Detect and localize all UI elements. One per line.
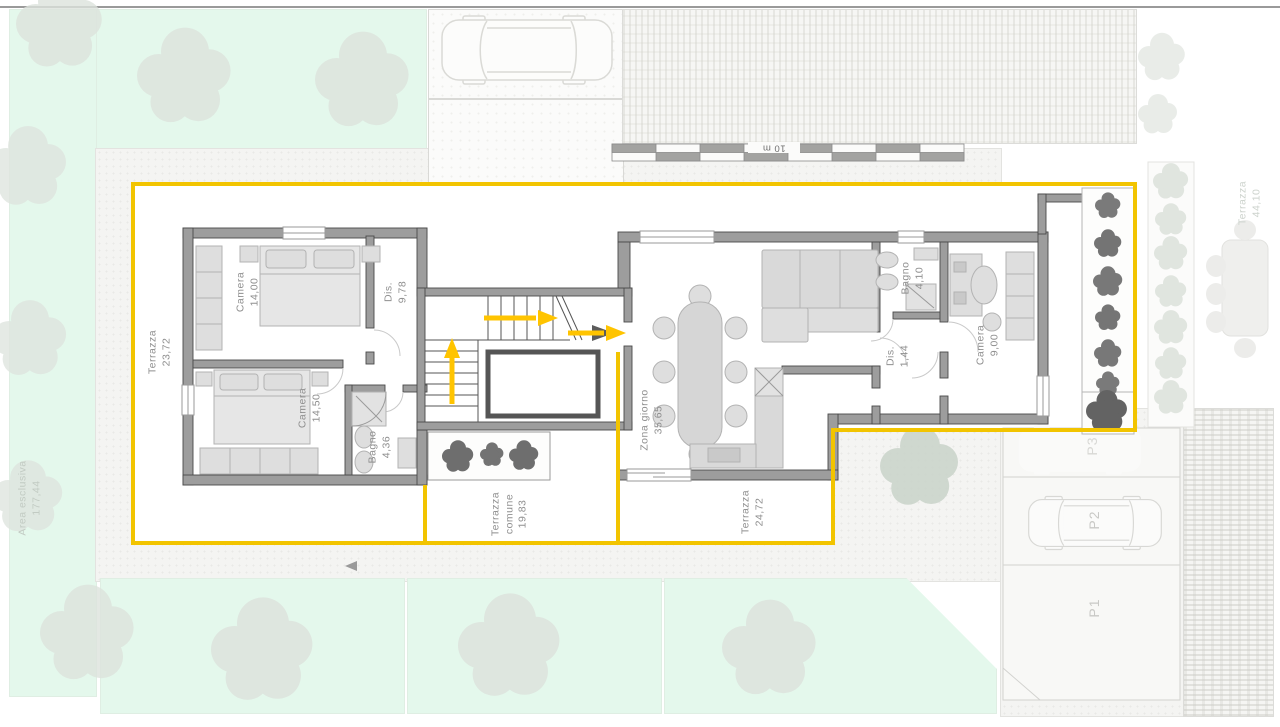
room-label-terrazza-south: Terrazza 24,72	[739, 490, 766, 534]
floor-plan-canvas: Terrazza 23,72 Camera 14,00 Dis. 9,78 Ca…	[0, 0, 1280, 727]
room-label-bagno-2: Bagno 4,10	[899, 262, 926, 295]
scale-bar-label: 10 m	[762, 143, 785, 154]
planter-right-terrace	[1082, 188, 1134, 434]
room-label-zona-giorno: Zona giorno 35,65	[638, 389, 665, 451]
room-label-bagno-1: Bagno 4,36	[366, 431, 393, 464]
car-outline-top	[442, 16, 612, 84]
room-label-dis-2: Dis. 1,44	[884, 345, 911, 367]
room-label-terrazza-left: Terrazza 23,72	[146, 330, 173, 374]
scale-bar	[612, 142, 964, 161]
room-label-camera-1: Camera 14,00	[234, 272, 261, 312]
floor-plan-drawing	[0, 0, 1280, 727]
label-area-esclusiva: Area esclusiva 177,44	[16, 460, 43, 535]
label-terrazza-adjacent: Terrazza 44,10	[1236, 181, 1263, 225]
room-label-camera-2: Camera 14,50	[296, 388, 323, 428]
parking-label-p3: P3	[1084, 436, 1100, 455]
room-label-dis-1: Dis. 9,78	[382, 281, 409, 303]
parking-label-p2: P2	[1086, 510, 1102, 529]
stair-core	[488, 352, 598, 416]
room-label-terrazza-comune: Terrazza comune 19,83	[490, 492, 531, 536]
path-marker	[345, 561, 357, 571]
parking-label-p1: P1	[1086, 598, 1102, 617]
planter-terrazza-comune	[428, 432, 550, 480]
room-label-camera-3: Camera 9,00	[974, 325, 1001, 365]
